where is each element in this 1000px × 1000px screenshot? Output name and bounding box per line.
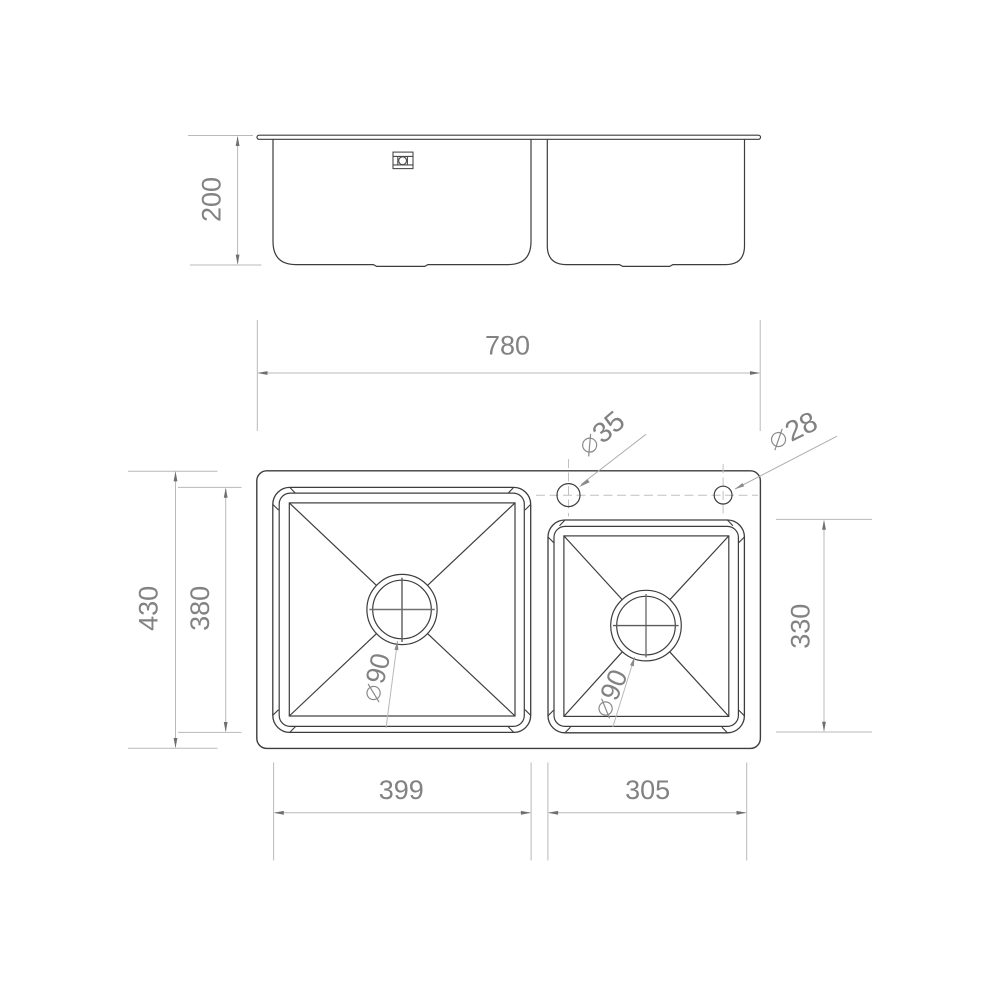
svg-text:399: 399	[379, 775, 424, 805]
svg-text:28: 28	[780, 406, 823, 449]
svg-text:305: 305	[625, 775, 670, 805]
svg-text:430: 430	[134, 586, 164, 631]
svg-text:200: 200	[197, 177, 227, 222]
svg-text:330: 330	[786, 604, 816, 649]
svg-text:380: 380	[185, 586, 215, 631]
svg-text:780: 780	[485, 331, 530, 361]
svg-text:35: 35	[586, 405, 631, 450]
svg-text:90: 90	[594, 665, 633, 704]
svg-text:90: 90	[360, 650, 396, 686]
